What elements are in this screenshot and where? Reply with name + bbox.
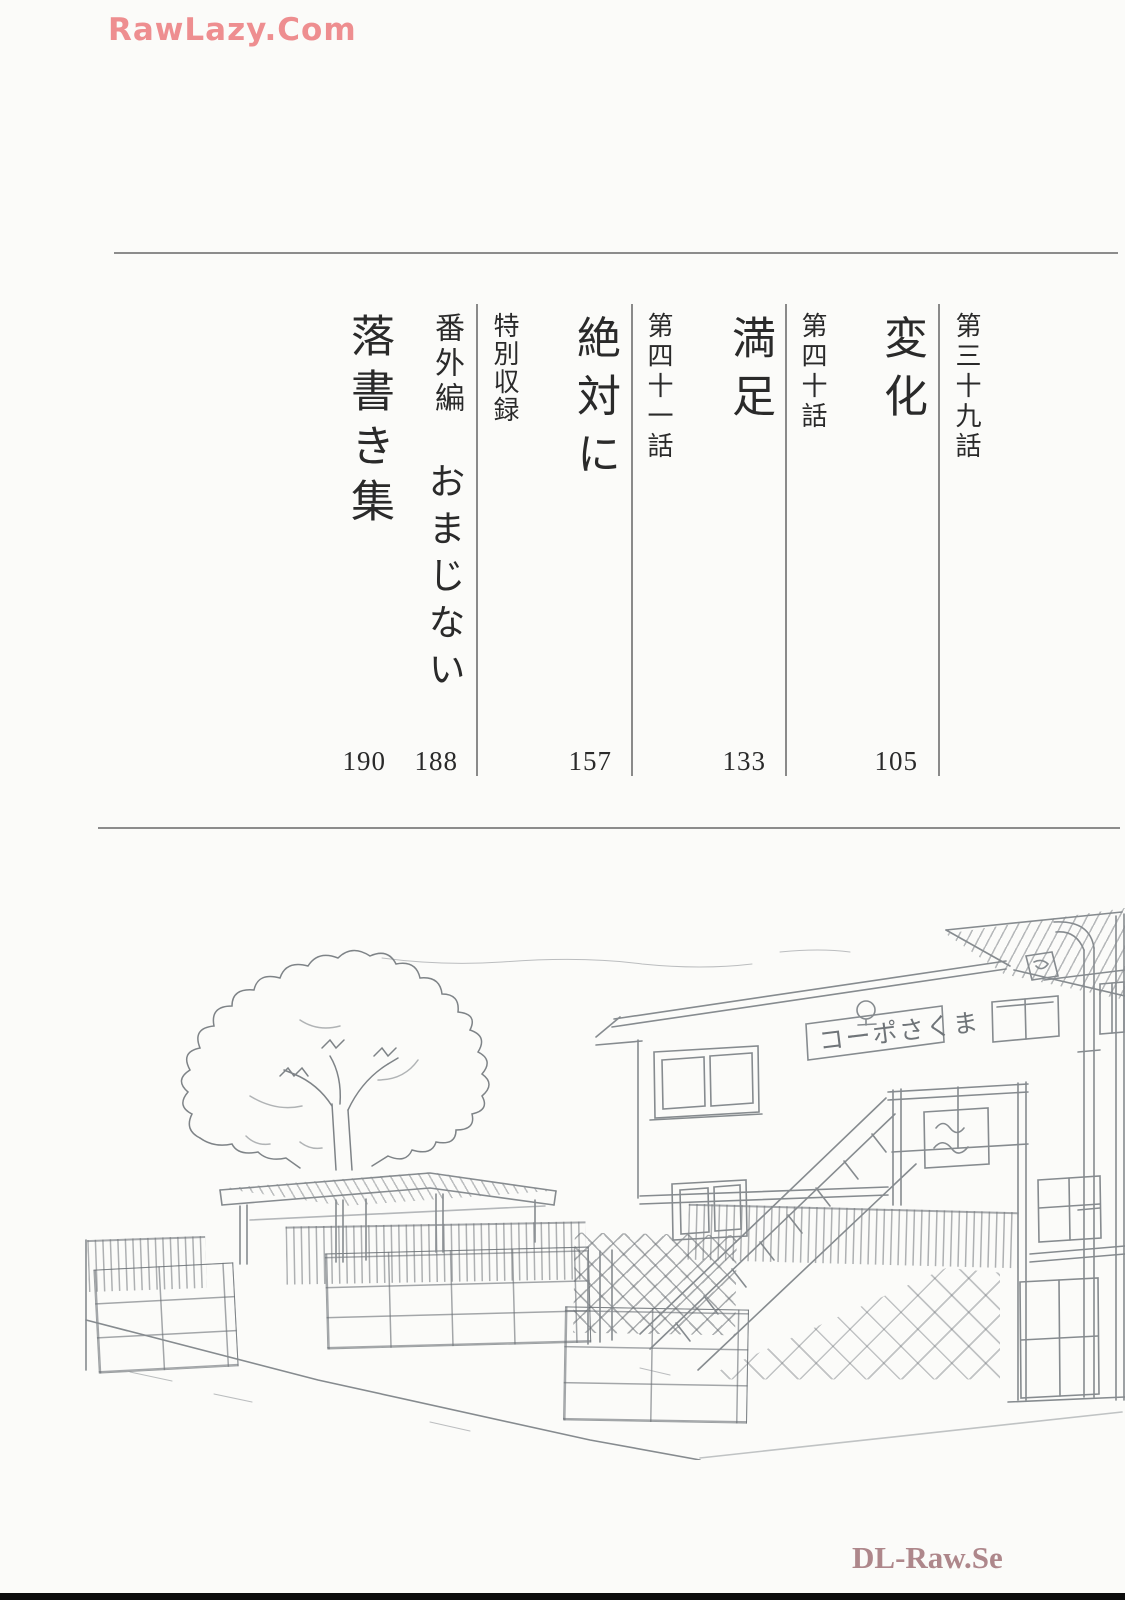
toc-page-number: 105 [848, 746, 918, 777]
toc-divider [938, 304, 940, 776]
toc-bottom-rule [98, 827, 1120, 829]
toc-top-rule [114, 252, 1118, 254]
toc-entry-41-title: 絶対に [572, 315, 616, 489]
toc-extra-chapter: 番外編 [431, 312, 461, 417]
toc-divider [631, 304, 633, 776]
toc-page-number: 188 [388, 746, 458, 777]
toc-sketchbook-title: 落書き集 [346, 313, 390, 533]
toc-page-number: 133 [696, 746, 766, 777]
toc-entry-39-chapter: 第三十九話 [953, 312, 979, 462]
sketch-lines: コーポさくま [0, 900, 1125, 1460]
building-sketch: コーポさくま [0, 900, 1125, 1460]
toc-page-number: 190 [316, 746, 386, 777]
toc-divider [785, 304, 787, 776]
building-sign-text: コーポさくま [817, 1008, 981, 1056]
toc-entry-40-chapter: 第四十話 [799, 312, 825, 432]
tree [181, 950, 489, 1170]
watermark-top: RawLazy.Com [108, 12, 357, 48]
toc-special-label: 特別収録 [491, 312, 517, 424]
toc-extra-title: おまじない [424, 462, 461, 697]
watermark-bottom: DL-Raw.Se [852, 1540, 1003, 1576]
toc-entry-40-title: 満足 [727, 315, 771, 431]
manga-toc-page: RawLazy.Com 第三十九話 変化 第四十話 満足 第四十一話 絶対に 特… [0, 0, 1125, 1600]
toc-divider [476, 304, 478, 776]
toc-entry-39-title: 変化 [879, 315, 923, 431]
toc-entry-41-chapter: 第四十一話 [645, 312, 671, 462]
bottom-black-bar [0, 1593, 1125, 1600]
toc-page-number: 157 [542, 746, 612, 777]
